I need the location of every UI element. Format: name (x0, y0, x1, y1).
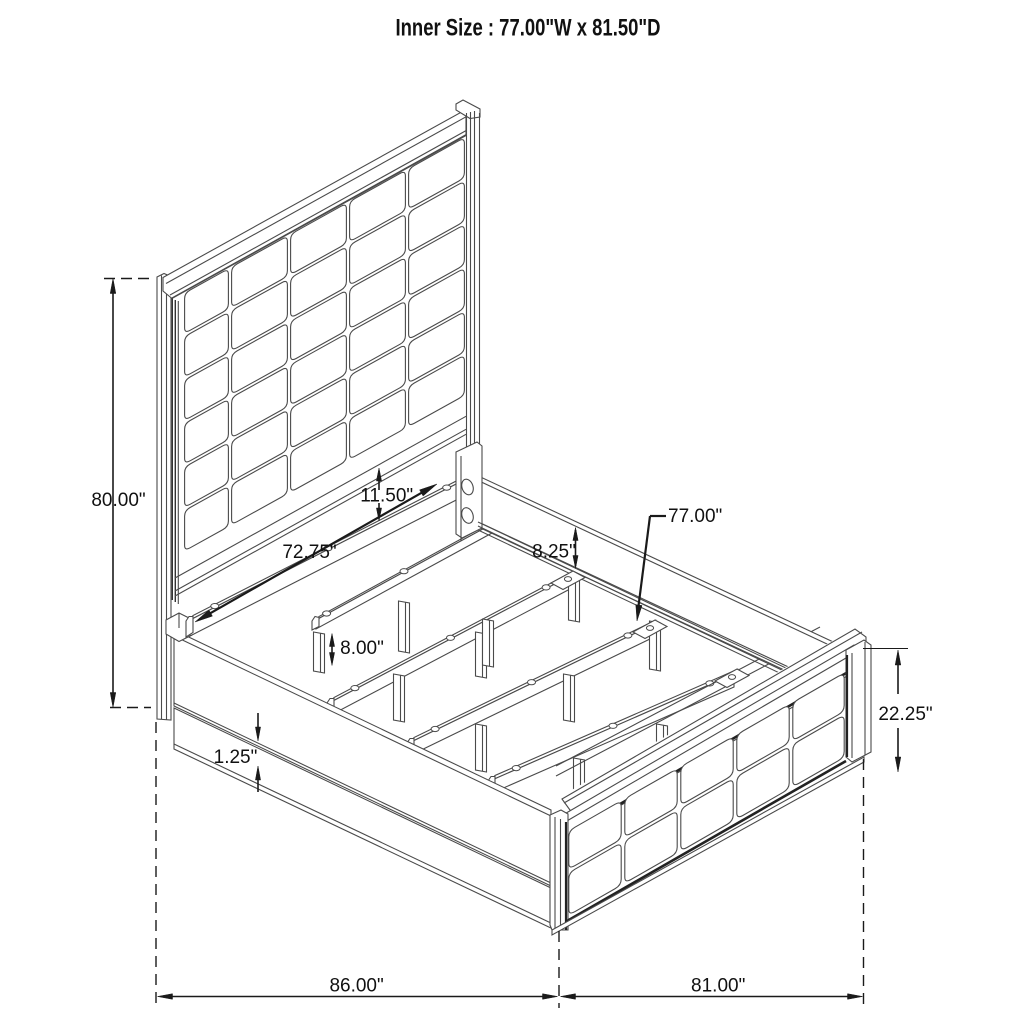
svg-text:72.75": 72.75" (282, 542, 336, 563)
svg-text:81.00": 81.00" (691, 976, 745, 997)
svg-text:8.00": 8.00" (340, 638, 384, 659)
svg-text:80.00": 80.00" (91, 490, 145, 511)
svg-text:77.00": 77.00" (668, 506, 722, 527)
svg-text:8.25": 8.25" (532, 542, 576, 563)
svg-text:22.25": 22.25" (878, 704, 932, 725)
svg-text:86.00": 86.00" (329, 976, 383, 997)
svg-text:1.25": 1.25" (214, 747, 258, 768)
svg-text:11.50": 11.50" (360, 486, 413, 507)
svg-text:Inner Size : 77.00"W x 81.50"D: Inner Size : 77.00"W x 81.50"D (396, 15, 661, 42)
